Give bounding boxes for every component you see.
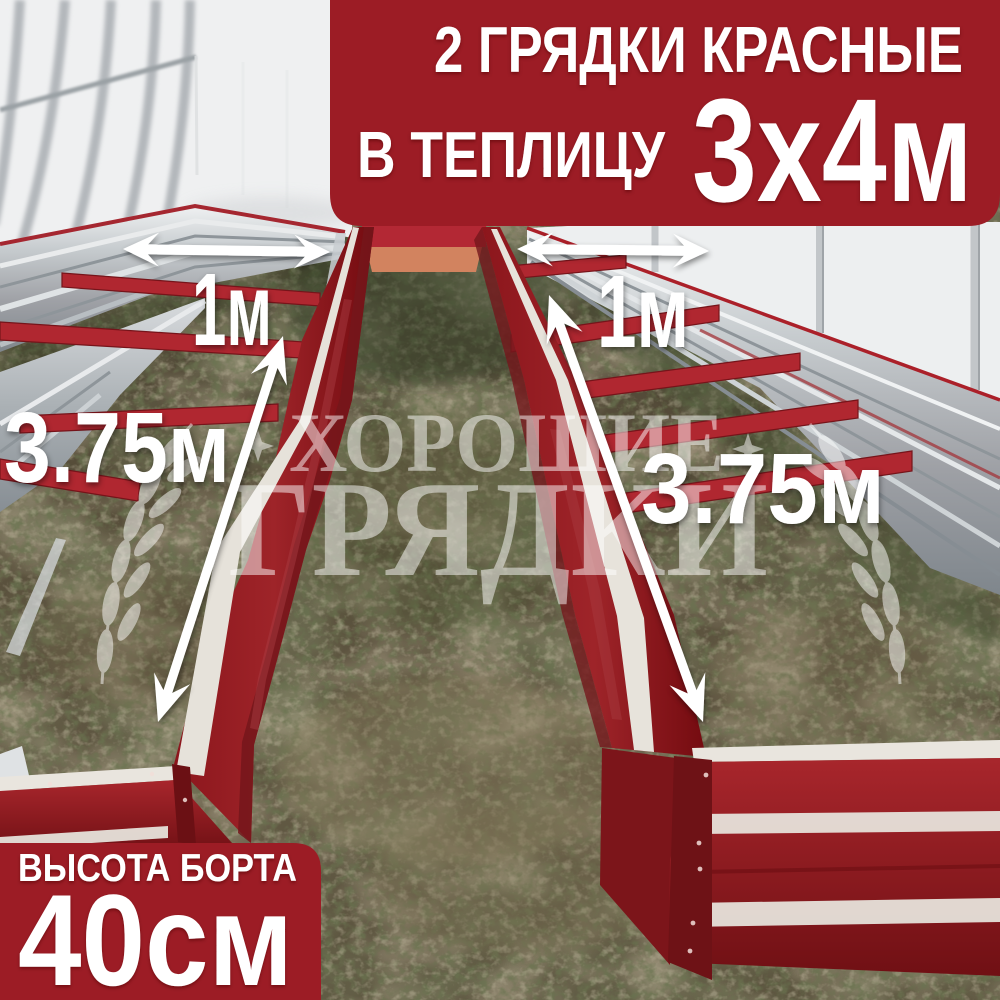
- svg-text:1м: 1м: [192, 252, 272, 367]
- svg-text:В ТЕПЛИЦУ: В ТЕПЛИЦУ: [357, 118, 666, 191]
- svg-text:1м: 1м: [597, 254, 689, 369]
- svg-text:3.75м: 3.75м: [4, 392, 230, 504]
- svg-text:40см: 40см: [18, 867, 293, 1000]
- svg-text:3.75м: 3.75м: [641, 433, 885, 545]
- svg-text:3х4м: 3х4м: [692, 69, 973, 233]
